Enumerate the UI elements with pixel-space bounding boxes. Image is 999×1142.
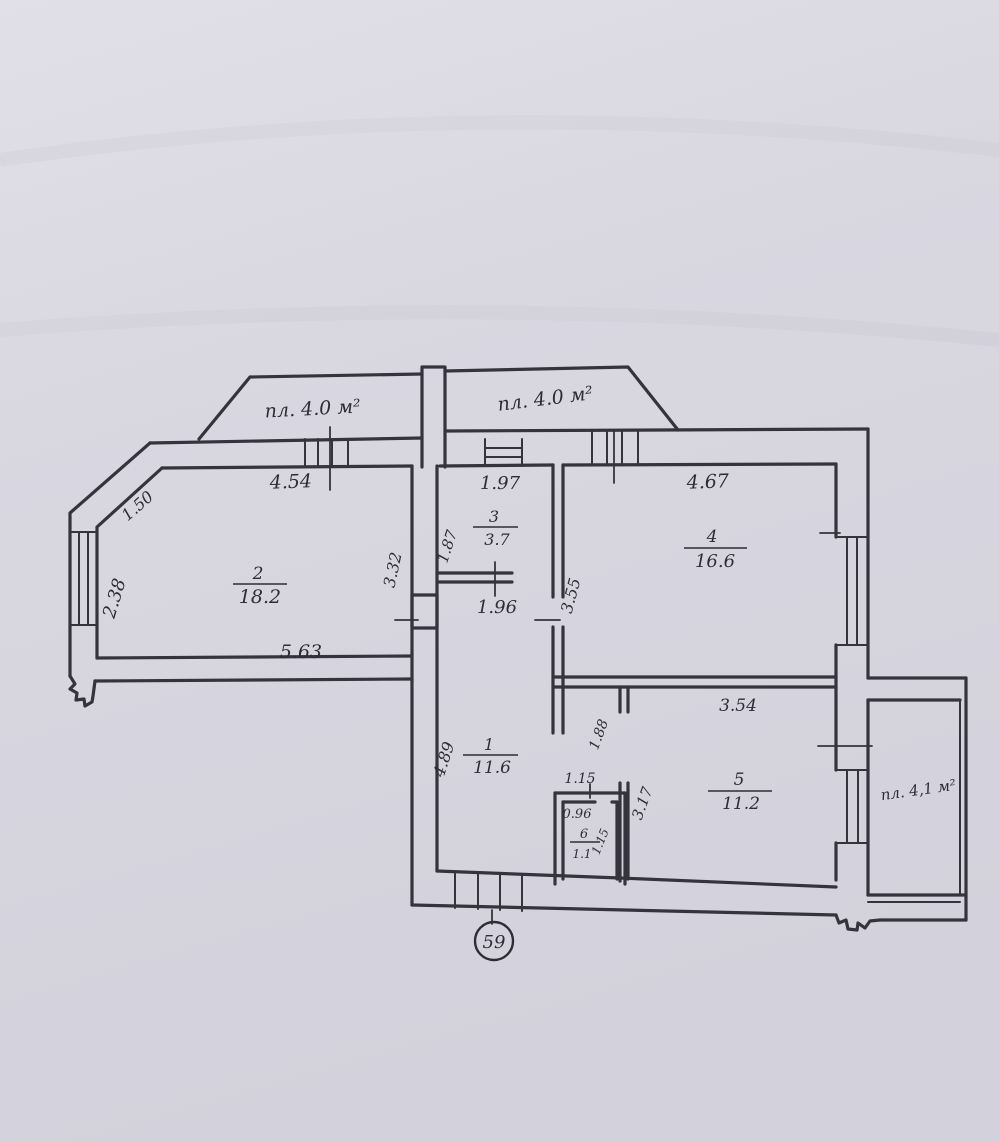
room-5-number: 5 <box>734 770 745 790</box>
room-1-number: 1 <box>484 735 494 754</box>
scanned-floor-plan-sheet: пл. 4.0 м² пл. 4.0 м² пл. 4,1 м² 4.54 1.… <box>0 0 999 1142</box>
room-2-area: 18.2 <box>239 586 281 608</box>
dim-corridor-width: 1.96 <box>477 597 517 618</box>
room-2-number: 2 <box>252 564 264 584</box>
room-6-number: 6 <box>580 827 588 842</box>
room-5-area: 11.2 <box>722 794 760 814</box>
room-4-number: 4 <box>706 527 718 547</box>
apartment-number-text: 59 <box>483 932 506 953</box>
dim-corridor-top: 1.97 <box>480 473 521 494</box>
room-1-area: 11.6 <box>473 758 511 778</box>
room-3-area: 3.7 <box>484 530 510 549</box>
dim-room4-top: 4.67 <box>685 470 730 494</box>
room-6-area: 1.1 <box>572 847 591 861</box>
paper-background <box>0 0 999 1142</box>
dim-bath-nook-width: 1.15 <box>564 771 595 787</box>
floor-plan: пл. 4.0 м² пл. 4.0 м² пл. 4,1 м² 4.54 1.… <box>0 0 999 1142</box>
dim-room5-top: 3.54 <box>719 696 757 716</box>
room-3-number: 3 <box>489 507 499 526</box>
room-4-area: 16.6 <box>695 551 735 572</box>
dim-room2-bottom: 5.63 <box>280 641 322 663</box>
dim-bath-inner-width: 0.96 <box>563 807 592 822</box>
dim-top-left-wall: 4.54 <box>268 470 312 493</box>
